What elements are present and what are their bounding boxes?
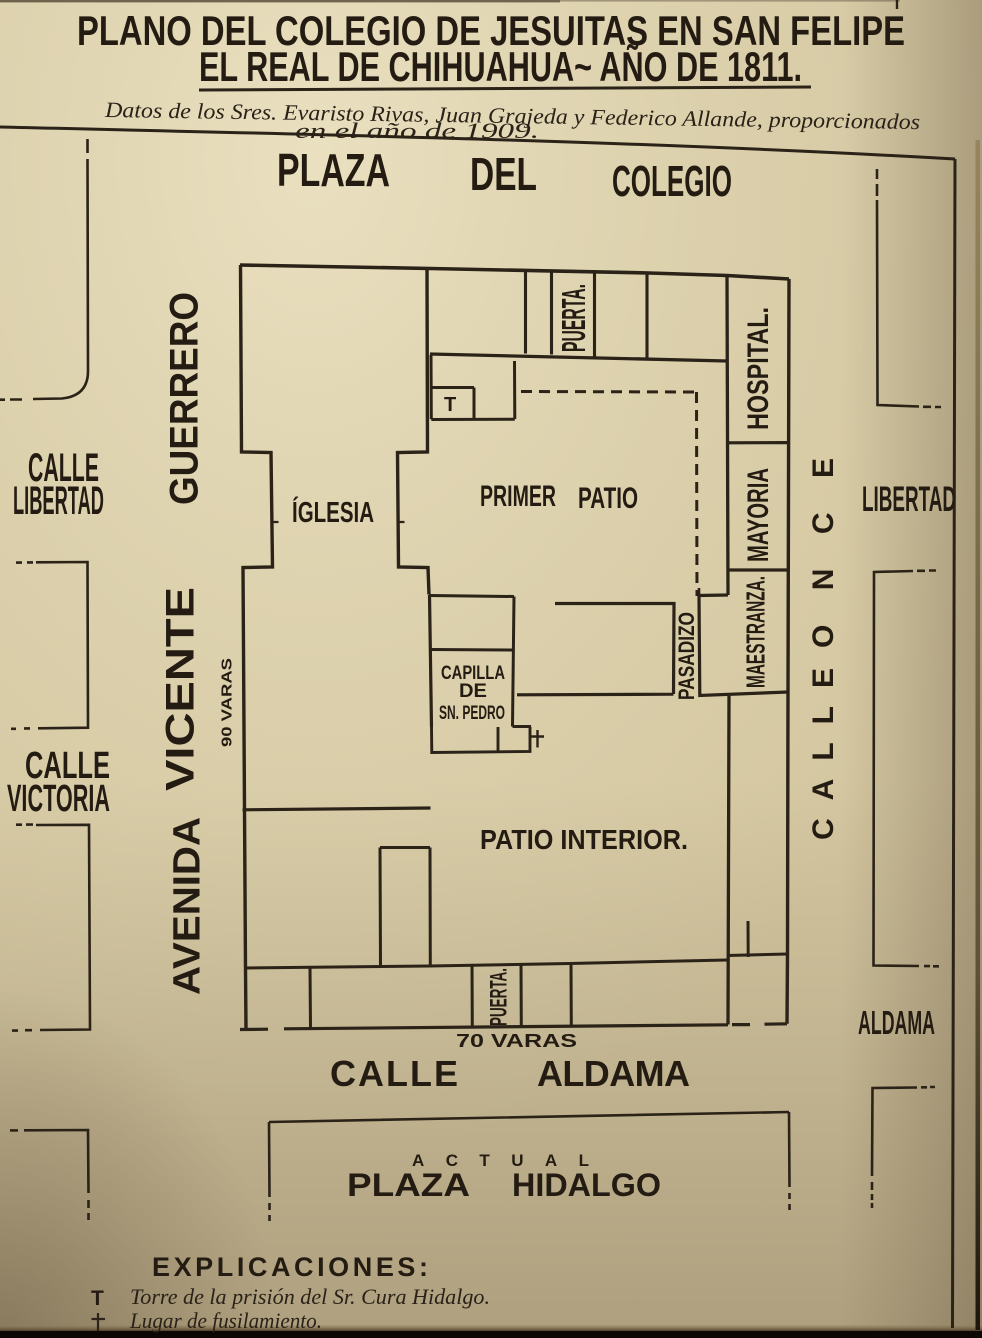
svg-text:T: T	[444, 394, 456, 416]
svg-text:70 VARAS: 70 VARAS	[456, 1031, 577, 1051]
svg-text:en el año de 1909.: en el año de 1909.	[295, 118, 539, 143]
svg-text:DEL: DEL	[470, 148, 537, 200]
svg-text:90 VARAS: 90 VARAS	[219, 658, 236, 747]
svg-text:PUERTA.: PUERTA.	[555, 284, 592, 352]
svg-text:PLAZA: PLAZA	[347, 1167, 470, 1203]
svg-text:Lugar de fusilamiento.: Lugar de fusilamiento.	[129, 1308, 322, 1333]
svg-text:PASADIZO: PASADIZO	[674, 612, 699, 700]
svg-text:ÍGLESIA: ÍGLESIA	[292, 495, 374, 529]
svg-text:HIDALGO: HIDALGO	[512, 1167, 661, 1203]
svg-text:COLEGIO: COLEGIO	[612, 157, 732, 206]
svg-text:DE: DE	[459, 681, 487, 702]
svg-text:VICTORIA: VICTORIA	[7, 778, 110, 820]
svg-text:ALDAMA: ALDAMA	[537, 1053, 690, 1094]
svg-text:HOSPITAL.: HOSPITAL.	[742, 307, 775, 430]
svg-text:LIBERTAD: LIBERTAD	[862, 480, 956, 519]
svg-text:SN. PEDRO: SN. PEDRO	[439, 703, 505, 724]
svg-text:MAESTRANZA.: MAESTRANZA.	[740, 576, 770, 688]
svg-text:Torre de la prisión del Sr. Cu: Torre de la prisión del Sr. Cura Hidalgo…	[130, 1284, 490, 1309]
svg-text:PRIMER: PRIMER	[480, 480, 556, 513]
svg-text:MAYORIA: MAYORIA	[742, 468, 775, 562]
svg-text:PUERTA.: PUERTA.	[486, 968, 513, 1026]
svg-text:PATIO: PATIO	[578, 482, 638, 515]
svg-text:PATIO INTERIOR.: PATIO INTERIOR.	[480, 824, 688, 855]
svg-text:T: T	[91, 1287, 104, 1310]
svg-text:VICENTE: VICENTE	[158, 587, 202, 791]
svg-text:LIBERTAD: LIBERTAD	[13, 479, 104, 523]
svg-text:GUERRERO: GUERRERO	[162, 292, 206, 505]
svg-text:EL REAL DE CHIHUAHUA~ AÑO DE 1: EL REAL DE CHIHUAHUA~ AÑO DE 1811.	[199, 43, 802, 90]
svg-text:CALLE: CALLE	[330, 1053, 458, 1094]
svg-text:PLAZA: PLAZA	[277, 144, 390, 196]
svg-text:ALDAMA: ALDAMA	[858, 1004, 935, 1041]
svg-text:AVENIDA: AVENIDA	[167, 817, 209, 995]
